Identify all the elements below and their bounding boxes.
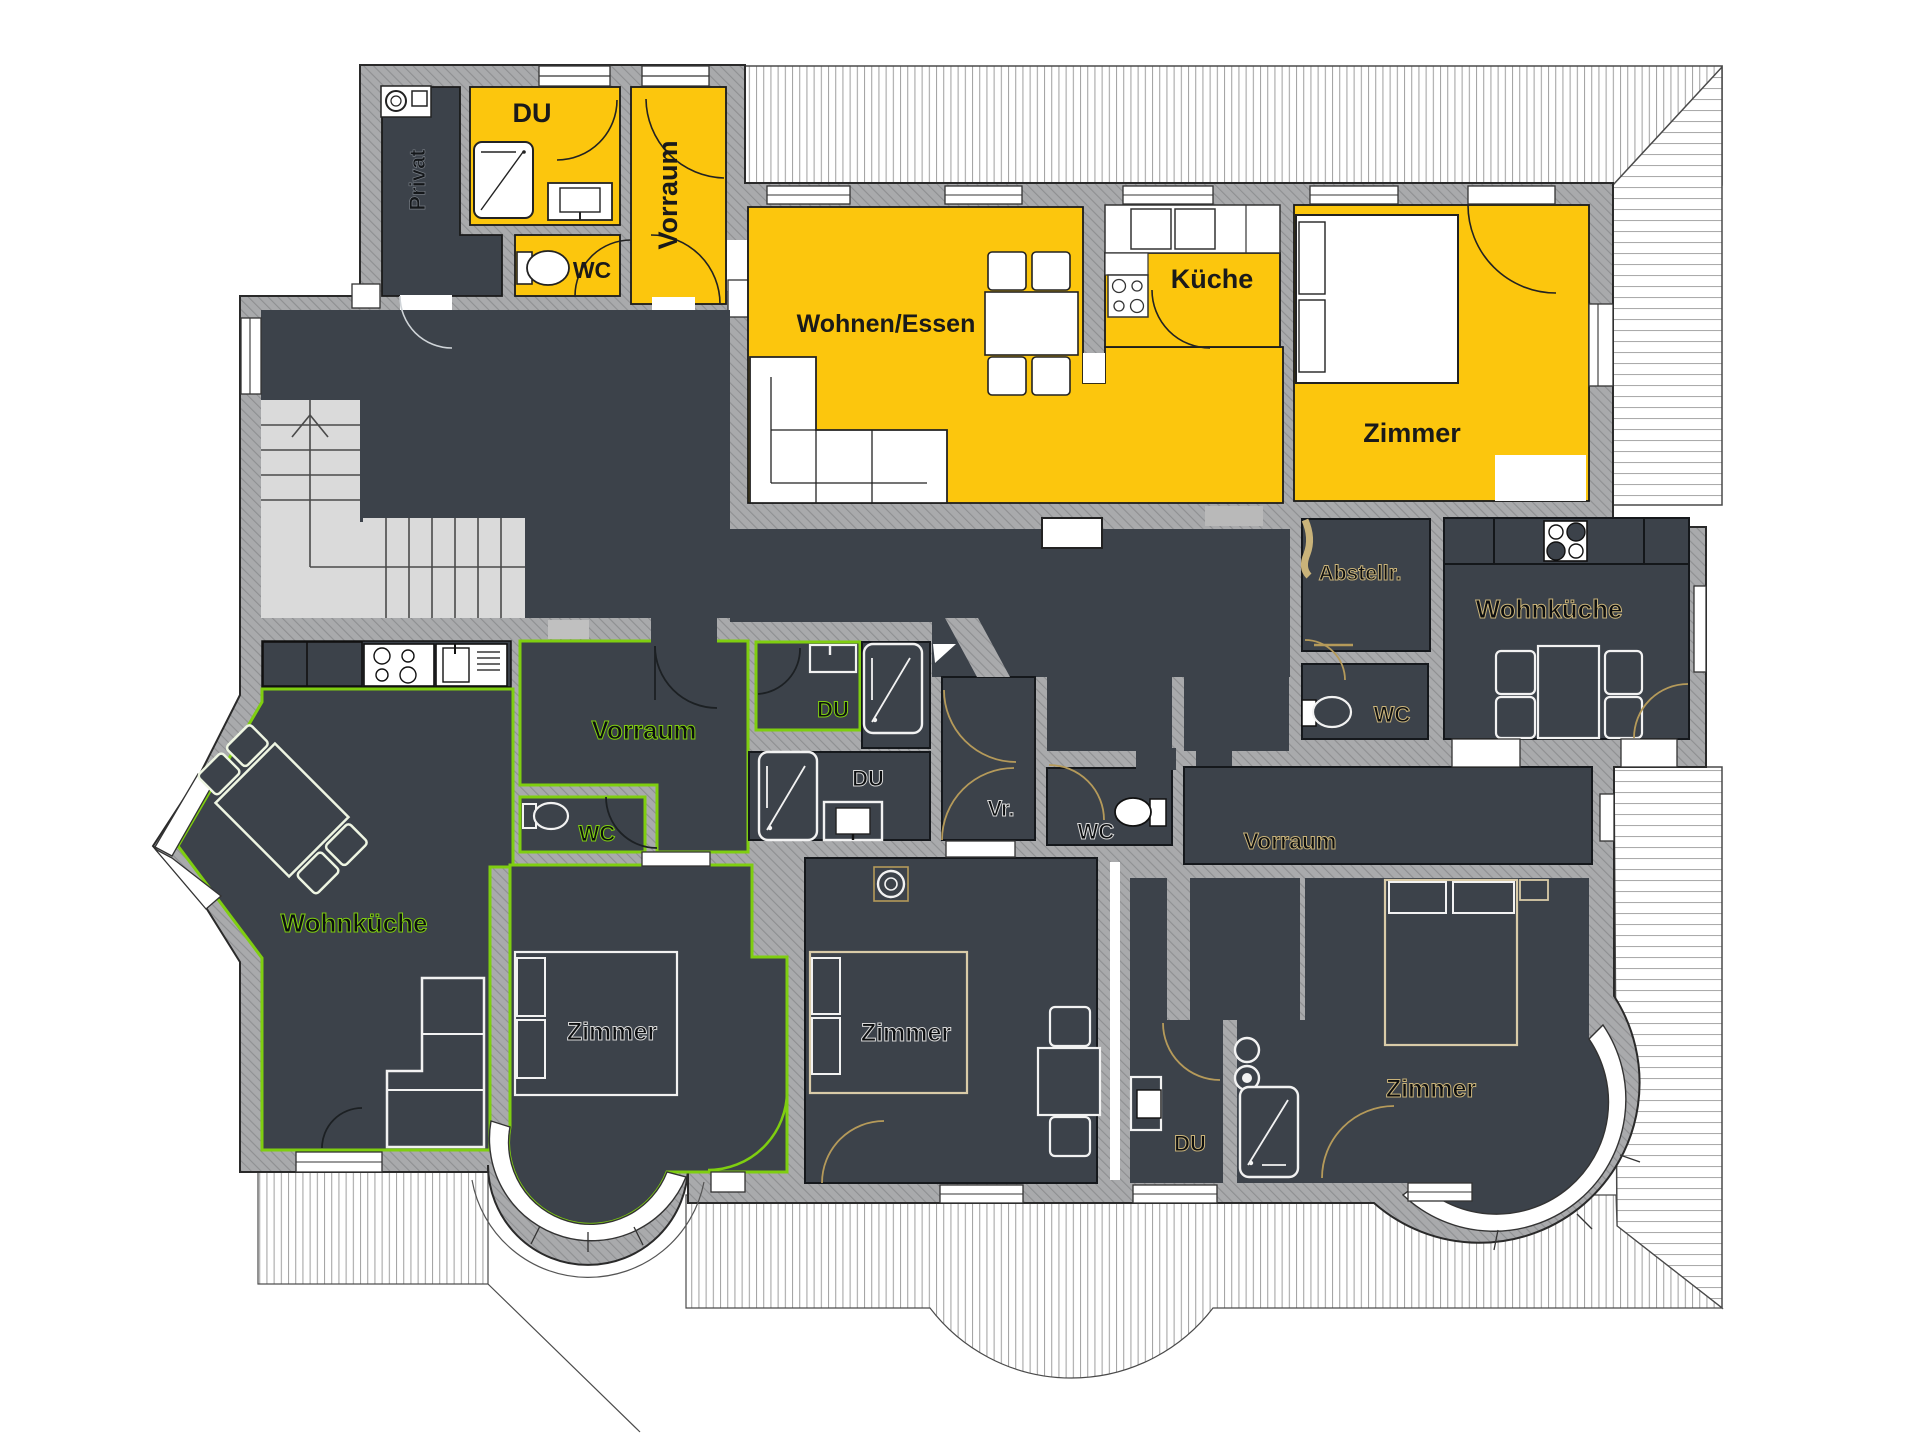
svg-text:WC: WC <box>573 257 611 283</box>
svg-text:Abstellr.: Abstellr. <box>1319 562 1402 585</box>
svg-text:DU: DU <box>852 766 884 791</box>
svg-text:Küche: Küche <box>1171 264 1254 294</box>
svg-text:Privat: Privat <box>405 149 430 211</box>
svg-text:Vr.: Vr. <box>988 796 1015 821</box>
svg-text:Vorraum: Vorraum <box>653 140 683 249</box>
svg-text:Wohnküche: Wohnküche <box>1476 594 1623 624</box>
svg-text:Zimmer: Zimmer <box>861 1019 952 1047</box>
svg-text:Zimmer: Zimmer <box>1363 418 1461 448</box>
svg-text:WC: WC <box>1078 819 1115 844</box>
svg-text:Zimmer: Zimmer <box>1386 1075 1477 1103</box>
svg-text:DU: DU <box>513 98 552 128</box>
svg-text:Wohnküche: Wohnküche <box>281 908 428 938</box>
svg-text:Vorraum: Vorraum <box>1244 828 1337 854</box>
svg-text:Wohnen/Essen: Wohnen/Essen <box>797 310 976 338</box>
svg-text:DU: DU <box>1174 1131 1206 1156</box>
svg-text:WC: WC <box>1374 702 1411 727</box>
svg-text:WC: WC <box>579 821 616 846</box>
svg-text:Vorraum: Vorraum <box>592 715 697 745</box>
svg-text:DU: DU <box>817 697 849 722</box>
svg-text:Zimmer: Zimmer <box>567 1018 658 1046</box>
